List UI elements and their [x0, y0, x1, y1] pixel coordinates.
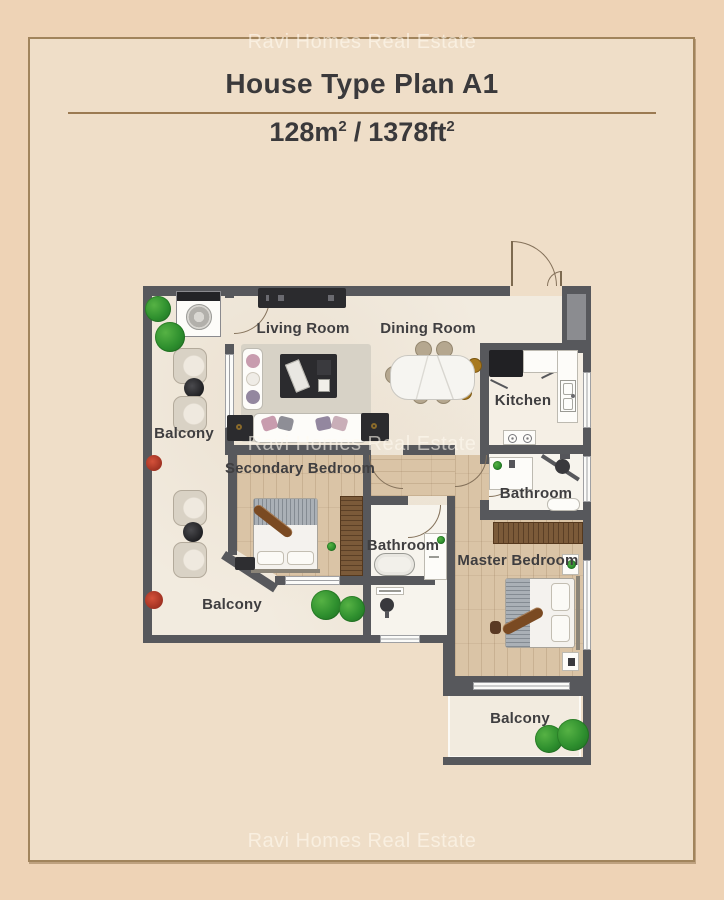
- balcony-left-label: Balcony: [182, 597, 282, 613]
- red-plant-1: [146, 455, 162, 471]
- plant-balcony-left-2: [339, 596, 365, 622]
- stove-burner-2: [523, 434, 532, 443]
- ac-unit-grille: [186, 304, 212, 330]
- master-pillow-2: [551, 615, 570, 642]
- title-divider: [68, 112, 656, 114]
- area-imperial: 1378ft: [368, 117, 446, 147]
- master-balcony-slider: [473, 682, 570, 690]
- secondary-bedroom-label: Secondary Bedroom: [220, 461, 380, 477]
- balcony-left-table: [183, 522, 203, 542]
- area-subtitle: 128m2/1378ft2: [0, 117, 724, 148]
- bathroom-top-label: Bathroom: [476, 486, 596, 502]
- secondary-headboard: [251, 569, 320, 573]
- wall-kitchen-bottom: [480, 445, 591, 454]
- plant-balcony-top-2: [155, 322, 185, 352]
- towel-rail: [376, 587, 404, 595]
- main-sofa: [253, 413, 367, 443]
- living-room-label: Living Room: [243, 321, 363, 337]
- side-table-left: [227, 415, 253, 441]
- wc-window: [380, 635, 420, 643]
- coffee-table: [280, 354, 337, 398]
- kitchen-window: [583, 372, 591, 428]
- tv-console: [258, 288, 346, 308]
- bathroom-top-plant: [493, 461, 502, 470]
- floor-plan: Balcony Living Room Dining Room: [143, 258, 600, 768]
- master-nightstand-bottom: [562, 652, 579, 671]
- area-separator: /: [354, 117, 362, 147]
- master-nightstand-decor: [568, 658, 575, 666]
- sofa-pillow-2: [277, 415, 295, 431]
- toilet-mid: [380, 598, 394, 612]
- entrance-door-leaf-small: [560, 271, 562, 286]
- plant-balcony-top-1: [145, 296, 171, 322]
- kitchen-stove: [503, 430, 536, 445]
- loveseat: [242, 348, 263, 410]
- wall-bathroom-right: [447, 496, 455, 643]
- floor-plan-page: { "watermarks": { "top": "Ravi Homes Rea…: [0, 0, 724, 900]
- wall-balcony-bottom-edge: [443, 757, 591, 765]
- master-wardrobe: [493, 522, 583, 544]
- area-imperial-sup: 2: [446, 118, 454, 135]
- sofa-pillow-4: [330, 415, 348, 432]
- secondary-desk: [235, 557, 255, 570]
- master-bedroom-label: Master Bedroom: [438, 553, 598, 569]
- secondary-plant: [327, 542, 336, 551]
- bathtub-inner: [378, 557, 411, 572]
- side-table-right-knob: [371, 423, 377, 429]
- area-metric: 128m: [269, 117, 338, 147]
- bathroom-mid-label: Bathroom: [343, 538, 463, 554]
- secondary-pillow-2: [287, 551, 314, 565]
- kitchen-label: Kitchen: [473, 393, 573, 409]
- loveseat-pillow-3: [246, 390, 260, 404]
- loveseat-pillow-1: [246, 354, 260, 368]
- balcony-top-table: [184, 378, 204, 398]
- wall-living-bottom-a: [225, 445, 365, 455]
- red-plant-2: [145, 591, 163, 609]
- bathroom-top-faucet: [509, 460, 515, 468]
- ac-unit-top: [177, 292, 220, 301]
- utility-shaft: [567, 294, 586, 340]
- master-bed: [505, 578, 575, 648]
- master-headboard: [576, 576, 580, 650]
- wall-balcony-partition-a: [225, 286, 234, 298]
- sofa-pillow-3: [315, 416, 332, 432]
- bathtub: [374, 553, 415, 576]
- secondary-bed: [253, 498, 318, 571]
- wall-bathroom-top-bottom: [480, 510, 591, 520]
- secondary-window: [285, 576, 340, 585]
- toilet-top-tank: [560, 454, 570, 459]
- sofa-pillow-1: [260, 415, 278, 432]
- stove-burner-1: [508, 434, 517, 443]
- kitchen-fridge-counter: [489, 350, 523, 377]
- balcony-left-chair-1: [173, 490, 207, 526]
- coffee-table-book: [317, 360, 331, 375]
- loveseat-pillow-2: [246, 372, 260, 386]
- wall-bathroom-top: [371, 496, 408, 505]
- page-title: House Type Plan A1: [0, 68, 724, 100]
- balcony-left-chair-2: [173, 542, 207, 578]
- balcony-bottom-label: Balcony: [460, 711, 580, 727]
- secondary-pillow-1: [257, 551, 284, 565]
- coffee-table-box: [318, 379, 330, 392]
- toilet-top: [555, 459, 570, 474]
- master-stool: [490, 621, 501, 634]
- balcony-top-label: Balcony: [144, 426, 224, 442]
- coffee-table-tray: [285, 359, 310, 392]
- master-pillow-1: [551, 583, 570, 611]
- dining-table: [390, 355, 475, 400]
- side-table-left-knob: [236, 424, 242, 430]
- secondary-wardrobe: [340, 496, 363, 576]
- toilet-mid-stem: [385, 611, 389, 618]
- side-table-right: [361, 413, 389, 441]
- master-window: [583, 560, 591, 650]
- area-metric-sup: 2: [338, 118, 346, 135]
- plant-balcony-left-1: [311, 590, 341, 620]
- wall-living-bottom-b: [403, 445, 455, 455]
- dining-room-label: Dining Room: [368, 321, 488, 337]
- entrance-door-leaf: [511, 241, 513, 286]
